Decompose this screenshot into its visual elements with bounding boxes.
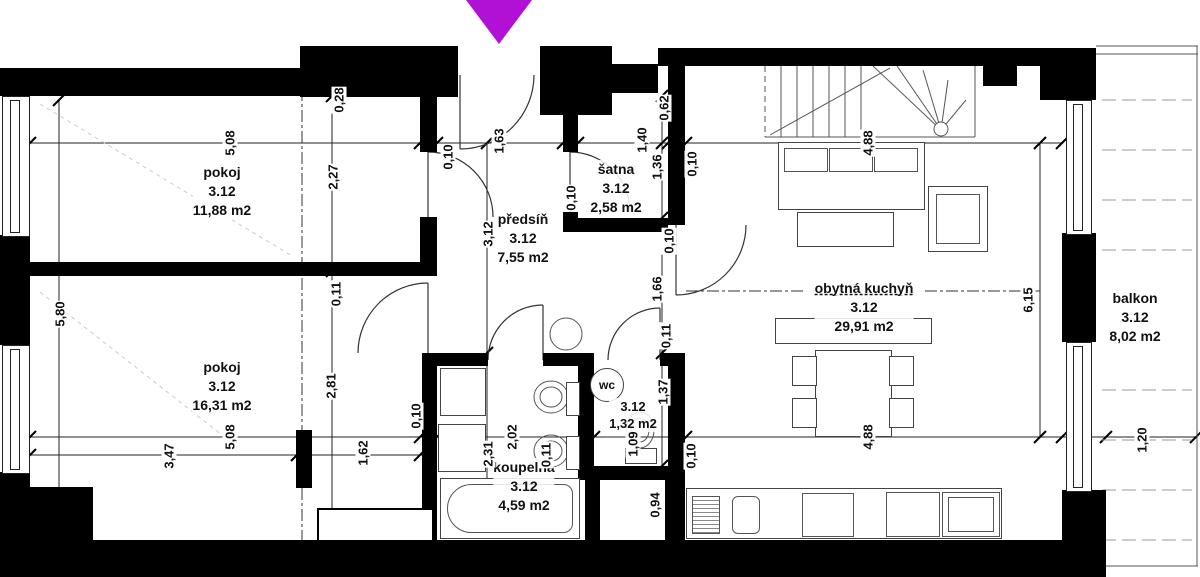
wall	[1040, 48, 1096, 100]
room-label-balkon: balkon 3.12 8,02 m2	[1109, 289, 1160, 346]
room-area: 4,59 m2	[493, 496, 554, 515]
coffee-table	[797, 212, 894, 247]
room-unit: 3.12	[815, 298, 914, 317]
room-name: šatna	[590, 160, 641, 179]
dimension-label: 2,27	[326, 163, 341, 190]
window	[10, 100, 20, 233]
wall	[578, 353, 594, 480]
wall	[1062, 490, 1106, 577]
dimension-label: 1,20	[1135, 426, 1150, 453]
wall	[420, 217, 437, 276]
dimension-label: 0,28	[332, 86, 347, 113]
balcony-door-window	[1073, 104, 1083, 231]
washing-machine	[440, 368, 486, 416]
wall	[437, 353, 488, 366]
dimension-label: 5,08	[223, 129, 238, 156]
room-area: 11,88 m2	[193, 201, 251, 220]
room-name: balkon	[1109, 289, 1160, 308]
dimension-label: 2,81	[324, 372, 339, 399]
dimension-label: 0,94	[648, 491, 663, 518]
room-area: 29,91 m2	[815, 317, 914, 336]
dimension-label: 0,11	[329, 281, 344, 308]
hob	[802, 493, 854, 537]
wall	[563, 93, 578, 152]
dimension-label: 2,02	[505, 423, 520, 450]
wall	[30, 262, 437, 276]
armchair-seat	[936, 194, 980, 244]
fridge-inner	[948, 497, 994, 532]
wall	[0, 540, 1067, 577]
room-name: pokoj	[193, 163, 251, 182]
room-unit: 3.12	[609, 398, 657, 415]
toilet-tank	[566, 382, 580, 416]
dimension-label: 0,11	[539, 442, 554, 469]
dimension-label: 0,62	[657, 94, 672, 121]
wall	[0, 235, 30, 345]
dimension-label: 1,40	[635, 126, 650, 153]
dimension-label: 1,63	[492, 127, 507, 154]
door-arcs	[358, 75, 746, 360]
dimension-label: 6,15	[1021, 286, 1036, 313]
chimney-column	[296, 430, 312, 488]
dimension-label: 4,88	[861, 129, 876, 156]
wc-corner-basin: wc	[590, 368, 624, 402]
room-label-kuchyn: obytná kuchyň 3.12 29,91 m2	[815, 279, 914, 336]
wall	[983, 66, 1017, 86]
wall	[0, 487, 93, 550]
wall	[668, 353, 685, 480]
room-name: wc	[599, 378, 615, 392]
room-unit: 3.12	[193, 182, 251, 201]
bottom-wall-niche	[317, 508, 434, 542]
sofa-cushion	[874, 148, 918, 172]
room-label-satna: šatna 3.12 2,58 m2	[590, 160, 641, 217]
dimension-label: 0,10	[685, 150, 700, 177]
room-unit: 3.12	[497, 229, 548, 248]
room-unit: 3.12	[493, 477, 554, 496]
room-area: 7,55 m2	[497, 248, 548, 267]
wall	[1062, 233, 1096, 342]
dishwasher	[886, 492, 940, 537]
wall	[668, 66, 685, 225]
dimension-label: 1,62	[356, 439, 371, 466]
wall	[665, 466, 685, 540]
dimension-label: 4,88	[861, 423, 876, 450]
dimension-label: 0,10	[684, 442, 699, 469]
dimension-label: 5,80	[53, 300, 68, 327]
room-label-wc: 3.12 1,32 m2	[609, 398, 657, 432]
room-unit: 3.12	[590, 179, 641, 198]
wall	[0, 68, 310, 96]
window	[1073, 346, 1083, 488]
dining-table	[815, 350, 892, 437]
chair	[792, 398, 817, 428]
dimension-label: 0,10	[564, 184, 579, 211]
floor-plan: pokoj 3.12 11,88 m2 pokoj 3.12 16,31 m2 …	[0, 0, 1200, 577]
chair	[792, 356, 817, 386]
dimension-label: 2,31	[481, 440, 496, 467]
dimension-label: 3,12	[481, 220, 496, 247]
entrance-marker-icon	[466, 0, 532, 44]
chair	[889, 356, 914, 386]
wall	[585, 466, 600, 540]
dimension-label: 0,10	[409, 402, 424, 429]
dimension-label: 1,66	[650, 275, 665, 302]
window	[10, 349, 20, 470]
sofa-cushion	[784, 148, 828, 172]
room-label-pokoj2: pokoj 3.12 16,31 m2	[192, 358, 251, 415]
wall	[610, 64, 658, 93]
room-unit: 3.12	[1109, 308, 1160, 327]
room-unit: 3.12	[192, 377, 251, 396]
room-name: pokoj	[192, 358, 251, 377]
dimension-label: 1,09	[626, 430, 641, 457]
dimension-label: 5,08	[223, 423, 238, 450]
sink-basin	[732, 496, 760, 534]
dimension-label: 1,37	[656, 378, 671, 405]
room-label-predsin: předsíň 3.12 7,55 m2	[497, 210, 548, 267]
dimension-label: 3,47	[162, 442, 177, 469]
dimension-label: 0,10	[441, 143, 456, 170]
chair	[889, 398, 914, 428]
room-area: 8,02 m2	[1109, 327, 1160, 346]
wall	[420, 96, 437, 152]
washbasin	[438, 424, 486, 472]
wall	[592, 466, 673, 480]
staircase	[765, 66, 975, 137]
bidet-tank	[566, 436, 580, 470]
dimension-label: 0,11	[659, 323, 674, 350]
dimension-label: 1,36	[650, 153, 665, 180]
sink-drainer	[692, 496, 720, 534]
room-name: obytná kuchyň	[815, 279, 914, 298]
room-area: 16,31 m2	[192, 396, 251, 415]
room-name: předsíň	[497, 210, 548, 229]
room-area: 2,58 m2	[590, 198, 641, 217]
wall	[563, 218, 668, 232]
room-label-pokoj1: pokoj 3.12 11,88 m2	[193, 163, 251, 220]
dimension-label: 0,10	[662, 227, 677, 254]
wall	[658, 48, 1062, 66]
